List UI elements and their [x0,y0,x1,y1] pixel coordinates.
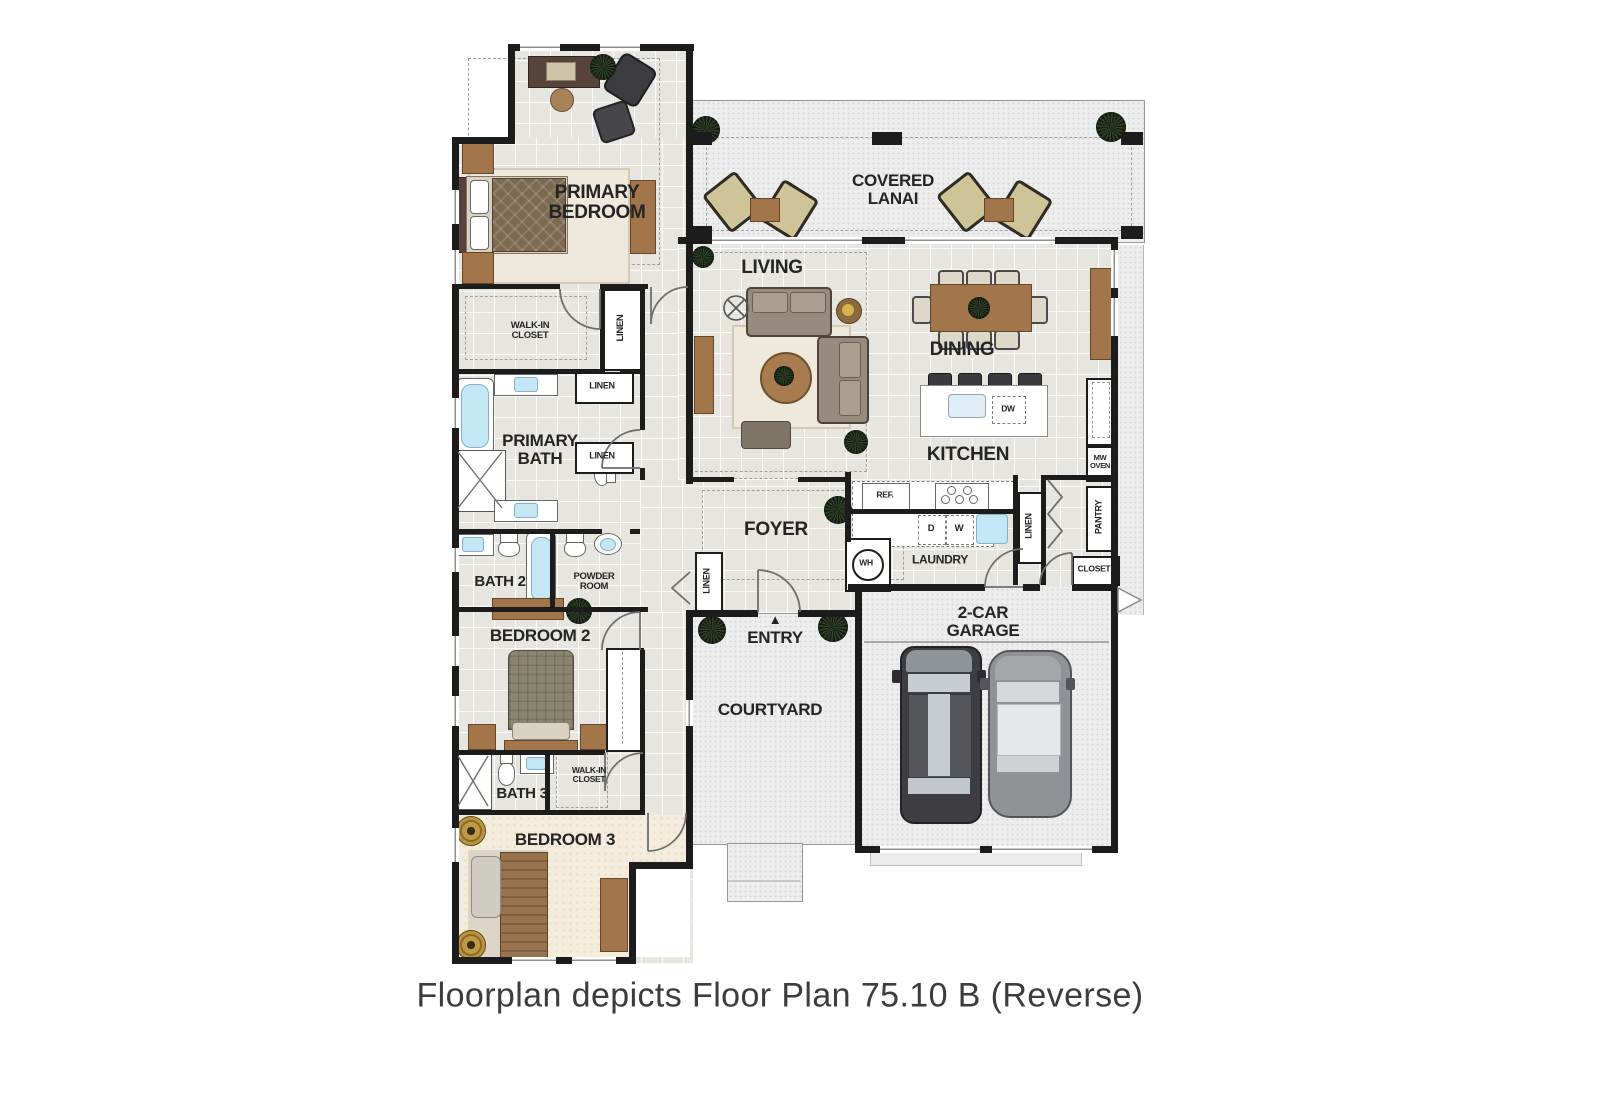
room-label-courtyard: COURTYARD [718,701,822,719]
room-label-foyer: FOYER [744,520,808,540]
bedroom2-door-arc [602,612,640,650]
water-heater-label: WH [859,559,873,568]
closet-door-arc [1040,553,1072,585]
shower-x [458,452,502,508]
room-label-bath3: BATH 3 [496,786,547,802]
laundry-garage-door-arc [985,549,1023,587]
closet-label-linen: LINEN [589,381,615,390]
room-label-walk-in-closet: WALK-IN CLOSET [511,321,550,341]
side-exit-arrow [1118,588,1141,612]
room-label-bedroom2: BEDROOM 2 [490,627,590,645]
ceiling-fan-icon [724,296,748,320]
shower-x [458,756,488,806]
floorplan-caption: Floorplan depicts Floor Plan 75.10 B (Re… [416,977,1143,1016]
closet-label-linen: LINEN [702,568,711,594]
room-label-living: LIVING [741,258,803,278]
appliance-label-mw-oven: MW OVEN [1090,454,1110,470]
entry-arrow: ▲ [769,613,782,627]
closet-label-linen: LINEN [589,451,615,460]
room-label-bath2: BATH 2 [474,574,525,590]
primary-bath-door-arc [602,430,640,468]
appliance-label-dryer: D [928,524,935,534]
front-door-arc [758,570,800,612]
primary-bedroom-door-arc [651,287,688,324]
room-label-laundry: LAUNDRY [912,554,968,567]
door-swings-layer [0,0,1600,1093]
bath3-door-arc [605,753,643,791]
hall-closet-bifold [672,572,690,604]
room-label-entry: ENTRY [747,629,803,647]
floorplan-image: PRIMARY BEDROOM COVERED LANAI LIVING DIN… [0,0,1600,1093]
closet-label-linen: LINEN [1024,513,1033,539]
appliance-label-washer: W [955,524,964,534]
room-label-kitchen: KITCHEN [927,445,1009,465]
pantry-bifold [1048,480,1062,548]
room-label-dining: DINING [930,340,995,360]
closet-label-closet: CLOSET [1078,565,1111,574]
room-label-garage: 2-CAR GARAGE [947,604,1020,640]
walk-in-closet-door-arc [560,289,600,329]
closet-label-linen: LINEN [616,314,626,341]
closet-label-pantry: PANTRY [1094,500,1103,534]
room-label-walk-in-closet3: WALK-IN CLOSET [572,766,606,784]
appliance-label-ref: REF. [876,491,893,500]
appliance-label-dishwasher: DW [1001,405,1015,414]
room-label-primary-bedroom: PRIMARY BEDROOM [548,183,645,223]
room-label-covered-lanai: COVERED LANAI [852,172,934,208]
room-label-bedroom3: BEDROOM 3 [515,831,615,849]
room-label-powder-room: POWDER ROOM [574,572,615,592]
bedroom3-door-arc [648,813,686,851]
room-label-primary-bath: PRIMARY BATH [502,432,578,468]
